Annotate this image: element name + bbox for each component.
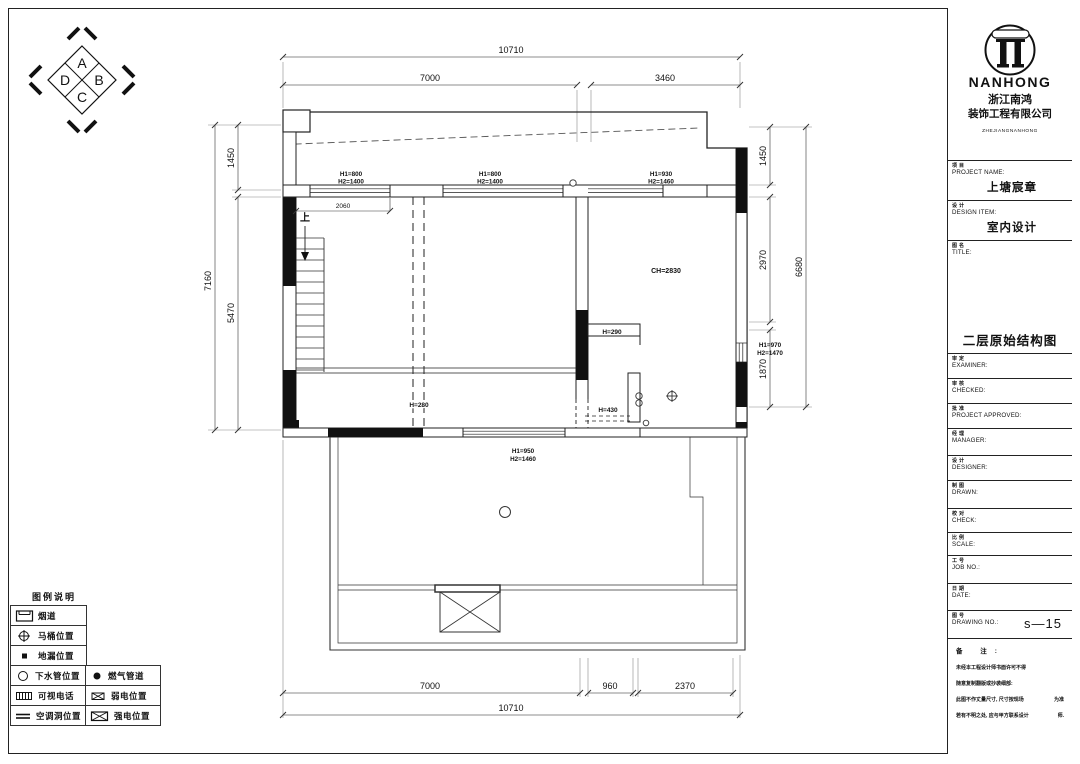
legend-label: 弱电位置 [111,690,147,702]
legend-label: 下水管位置 [35,670,80,682]
field-en-label: SCALE: [952,541,1072,549]
drain-pipe-icon [15,669,31,683]
field-en-label: DRAWN: [952,489,1072,497]
dim-top-right: 3460 [655,73,675,83]
field-en-label: EXAMINER: [952,362,1072,370]
drawing-number-value: s—15 [1024,616,1062,631]
ceiling-height-label: CH=2830 [651,268,681,275]
gas-pipe-icon [90,669,104,683]
legend-label: 可视电话 [38,690,74,702]
compass-c: C [77,89,87,105]
compass-b: B [94,72,103,88]
dim-bottom-total: 10710 [498,703,523,713]
flue-icon [15,609,34,623]
sill-height-label: H=430 [598,407,618,414]
opening-height-label: H=290 [602,329,622,336]
dim-right-top: 1450 [758,146,768,166]
title-block: NANHONG 浙江南鸿 装饰工程有限公司 ZHEJIANGNANHONG 项目… [947,8,1072,754]
compass-d: D [60,72,70,88]
east-window-h1: H1=970 [759,342,782,349]
dim-left-outer: 7160 [203,271,213,291]
legend-label: 烟道 [38,610,56,622]
field-examiner: 审定 EXAMINER: [948,353,1072,378]
north-left-window-h1: H1=800 [340,171,363,178]
south-window-h2: H2=1460 [510,456,536,463]
terrace [330,437,745,650]
north-right-window-h1: H1=930 [650,171,673,178]
dim-bottom-mid: 960 [602,681,617,691]
legend-row: 下水管位置 燃气管道 [10,665,161,686]
company-name-en: ZHEJIANGNANHONG [982,128,1038,134]
east-window-h2: H2=1470 [757,350,783,357]
legend-label: 燃气管道 [108,670,144,682]
field-en-label: JOB NO.: [952,564,1072,572]
dim-left-bottom: 5470 [226,303,236,323]
brand-name: NANHONG [969,74,1052,90]
note-line: 未经本工程设计师书面许可不得 [956,664,1026,671]
north-right-window-h2: H2=1460 [648,179,674,186]
dim-right-bottom: 1870 [758,359,768,379]
field-manager: 经理 MANAGER: [948,428,1072,455]
field-checked: 审核 CHECKED: [948,378,1072,403]
legend-row: 地漏位置 [10,645,87,666]
company-name-line1: 浙江南鸿 [988,92,1032,106]
field-project-approved: 批准 PROJECT APPROVED: [948,403,1072,428]
field-job-no: 工号 JOB NO.: [948,555,1072,583]
note-line: 若有不明之处, 应与甲方联系设计 [956,712,1029,719]
legend-row: 马桶位置 [10,625,87,646]
legend-row: 空调洞位置 强电位置 [10,705,161,726]
field-en-label: DESIGNER: [952,464,1072,472]
field-en-label: PROJECT NAME: [952,169,1072,177]
legend-row: 烟道 [10,605,87,626]
video-phone-icon [15,689,34,703]
field-title: 图名 TITLE: 二层原始结构图 [948,240,1072,353]
beam-height-label: H=280 [409,402,429,409]
field-en-label: DATE: [952,592,1072,600]
ac-hole-icon [15,709,32,723]
legend-title: 图例说明 [10,590,170,603]
field-en-label: TITLE: [952,249,1072,257]
field-project-name: 项目 PROJECT NAME: 上塘宸章 [948,160,1072,200]
dim-bottom-left: 7000 [420,681,440,691]
toilet-icon [15,629,34,643]
south-window-h1: H1=950 [512,448,535,455]
north-mid-window-h2: H2=1400 [477,179,503,186]
field-en-label: CHECKED: [952,387,1072,395]
dim-right-outer: 6680 [794,257,804,277]
legend-label: 马桶位置 [38,630,74,642]
field-en-label: PROJECT APPROVED: [952,412,1072,420]
field-drawn: 制图 DRAWN: [948,480,1072,508]
project-name-value: 上塘宸章 [952,179,1072,195]
company-name-line2: 装饰工程有限公司 [967,107,1052,120]
field-en-label: MANAGER: [952,437,1072,445]
company-logo: NANHONG 浙江南鸿 装饰工程有限公司 ZHEJIANGNANHONG [948,8,1073,160]
legend: 图例说明 烟道 马桶位置 地漏位置 [10,590,170,726]
strong-current-icon [90,709,110,723]
dim-right-mid: 2970 [758,250,768,270]
stair: 上 2060 [293,198,393,372]
window-labels: H1=800 H2=1400 H1=800 H2=1400 H1=930 H2=… [338,171,783,463]
legend-label: 强电位置 [114,710,150,722]
orientation-compass: A B C D [30,28,134,132]
dim-bottom-right: 2370 [675,681,695,691]
field-designer: 设计 DESIGNER: [948,455,1072,480]
dim-left-top: 1450 [226,148,236,168]
legend-label: 地漏位置 [38,650,74,662]
plumbing-symbols [500,180,679,518]
notes-title: 备 注: [956,645,1072,655]
stair-up-label: 上 [300,211,310,224]
dim-top-left: 7000 [420,73,440,83]
compass-a: A [77,55,87,71]
field-en-label: DESIGN ITEM: [952,209,1072,217]
note-line-right: 师. [1058,712,1064,719]
note-line: 此图不作丈量尺寸, 尺寸按现场 [956,696,1024,703]
floor-drain-icon [15,649,34,663]
field-check: 校对 CHECK: [948,508,1072,532]
field-design-item: 设计 DESIGN ITEM: 室内设计 [948,200,1072,240]
design-item-value: 室内设计 [952,219,1072,235]
legend-label: 空调洞位置 [36,710,81,722]
notes-section: 备 注: 未经本工程设计师书面许可不得 随意复制翻版或抄袭细部: 此图不作丈量尺… [948,638,1072,754]
north-left-window-h2: H2=1400 [338,179,364,186]
legend-row: 可视电话 弱电位置 [10,685,161,706]
field-en-label: CHECK: [952,517,1072,525]
field-drawing-no: 图号 DRAWING NO.: s—15 [948,610,1072,638]
dim-top-total: 10710 [498,45,523,55]
drawing-title-value: 二层原始结构图 [948,330,1072,349]
weak-current-icon [90,689,107,703]
note-line: 随意复制翻版或抄袭细部: [956,680,1013,687]
field-scale: 比例 SCALE: [948,532,1072,555]
north-mid-window-h1: H1=800 [479,171,502,178]
stair-width-dim: 2060 [336,203,351,210]
note-line-right: 为准 [1054,696,1064,703]
field-date: 日期 DATE: [948,583,1072,610]
